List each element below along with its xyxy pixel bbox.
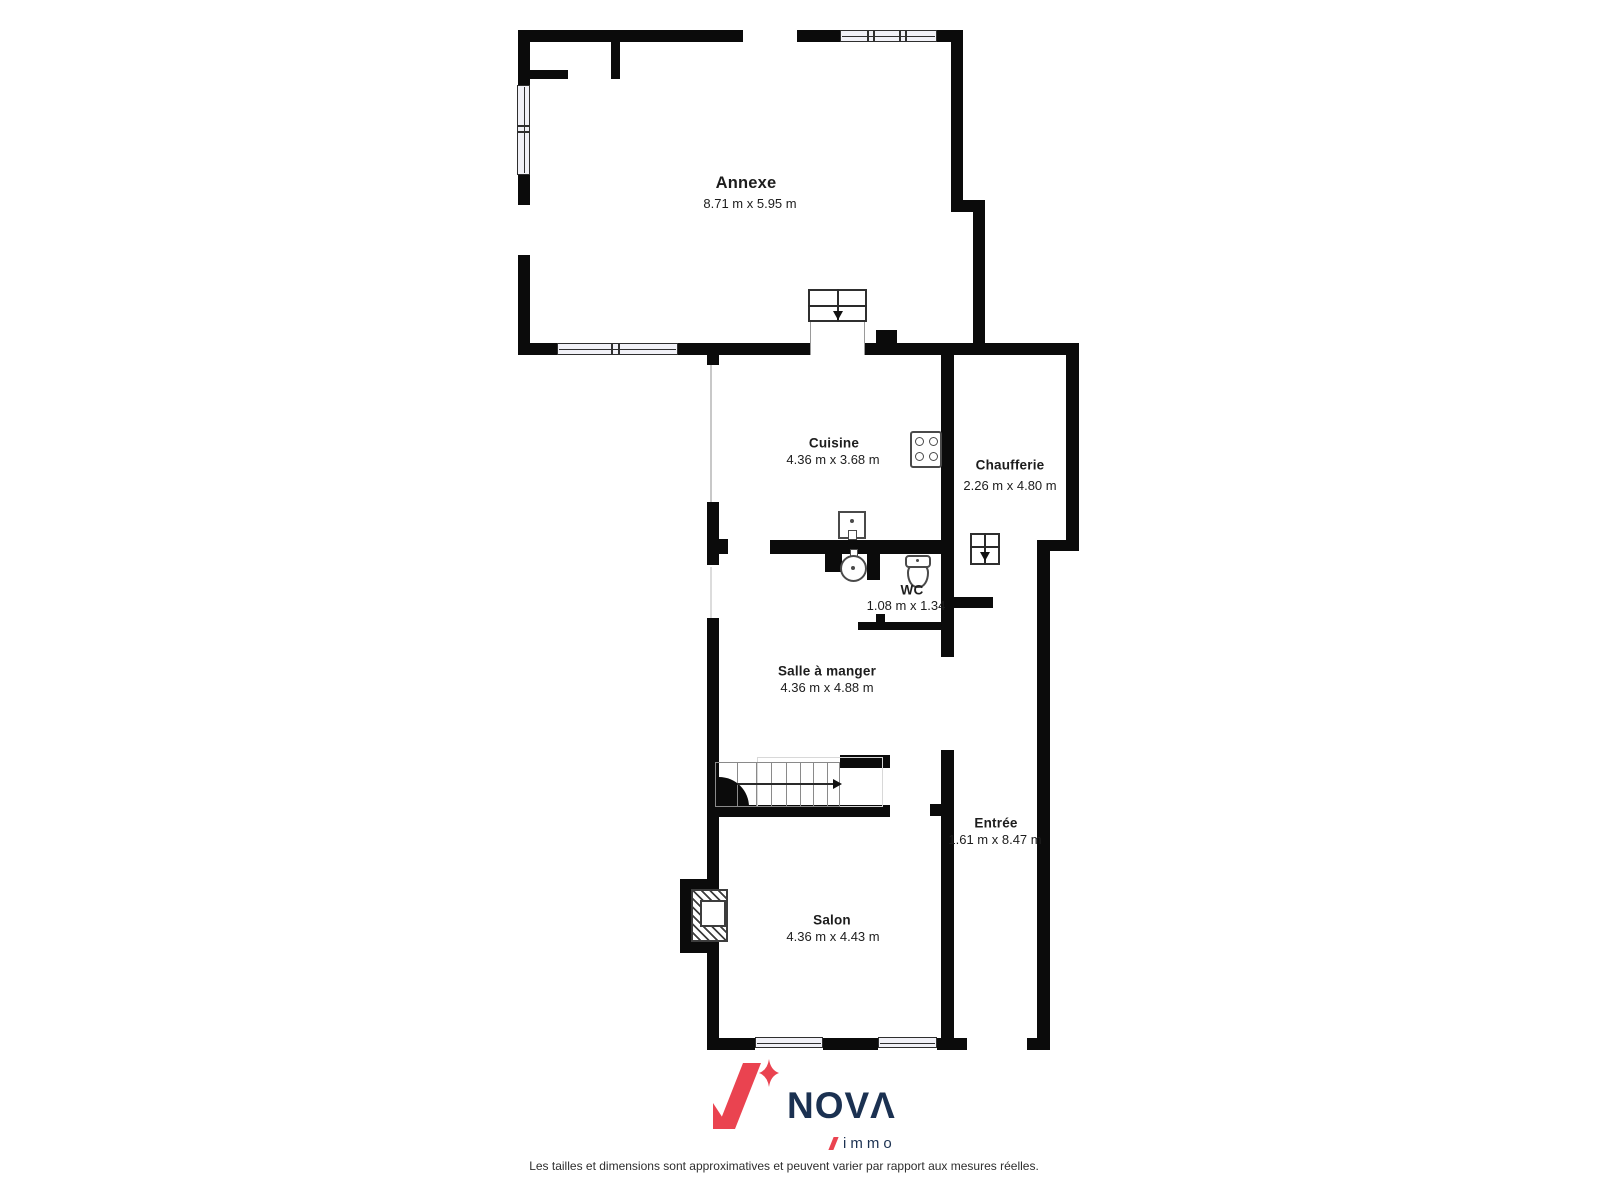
down-arrow-icon — [980, 552, 990, 561]
window-divider — [518, 125, 529, 127]
wall-segment — [518, 175, 530, 205]
room-label-salle-a-manger: Salle à manger — [778, 665, 876, 680]
washbasin-drain — [851, 566, 855, 570]
chimney-stub — [876, 330, 897, 344]
window-icon — [755, 1037, 823, 1048]
room-label-entree: Entrée — [974, 817, 1017, 832]
wall-segment — [863, 343, 1079, 355]
wall-segment — [867, 554, 880, 580]
toilet-button — [916, 559, 919, 562]
logo-subtitle: immo — [831, 1135, 896, 1152]
window-icon — [878, 1037, 937, 1048]
wall-segment — [707, 618, 719, 764]
window-icon — [517, 85, 530, 175]
wall-segment — [1027, 1038, 1049, 1050]
stove-icon — [910, 431, 942, 468]
stove-burner — [929, 437, 938, 446]
window-icon — [840, 30, 937, 42]
wall-segment — [707, 1038, 755, 1050]
stair-arrow-icon — [833, 779, 842, 789]
wall-segment — [518, 343, 557, 355]
room-label-wc: WC — [901, 584, 924, 599]
nova-logo-icon — [713, 1055, 781, 1135]
stair-direction-line — [737, 783, 833, 785]
window-divider — [873, 31, 875, 41]
wall-segment — [680, 942, 719, 953]
wall-segment — [973, 200, 985, 355]
stairwell-passage — [810, 322, 865, 355]
wall-segment — [678, 343, 810, 355]
window-divider — [905, 31, 907, 41]
wall-segment — [951, 30, 963, 212]
sink-drain — [850, 519, 854, 523]
sink-faucet — [848, 530, 857, 540]
stove-burner — [929, 452, 938, 461]
floor-plan: Annexe 8.71 m x 5.95 m Cuisine 4.36 m x … — [0, 0, 1600, 1200]
wall-segment — [611, 30, 620, 79]
wall-segment — [707, 539, 728, 554]
window-divider — [618, 344, 620, 354]
wall-segment — [770, 540, 954, 554]
logo-subtitle-text: immo — [843, 1135, 896, 1152]
wall-segment — [797, 30, 840, 42]
wall-segment — [876, 614, 885, 623]
window-divider — [611, 344, 613, 354]
wall-segment — [937, 1038, 967, 1050]
wall-segment — [823, 1038, 878, 1050]
fireplace-hearth — [700, 900, 726, 927]
room-dims-cuisine: 4.36 m x 3.68 m — [786, 453, 879, 467]
wall-segment — [707, 355, 719, 365]
room-label-annexe: Annexe — [716, 174, 777, 192]
logo-wordmark: NOVΛ — [787, 1085, 896, 1127]
room-dims-wc: 1.08 m x 1.34 — [867, 599, 946, 613]
opening-line — [710, 567, 712, 618]
wall-segment — [954, 597, 993, 608]
wall-segment — [858, 622, 941, 630]
room-dims-salon: 4.36 m x 4.43 m — [786, 930, 879, 944]
room-label-cuisine: Cuisine — [809, 437, 859, 452]
wall-segment — [707, 502, 719, 565]
wall-segment — [1066, 343, 1079, 551]
disclaimer-text: Les tailles et dimensions sont approxima… — [0, 1159, 1568, 1173]
stove-burner — [915, 452, 924, 461]
room-label-salon: Salon — [813, 914, 851, 929]
wall-segment — [518, 30, 743, 42]
wall-segment — [707, 953, 719, 1050]
logo-slash-icon — [828, 1137, 838, 1150]
wall-segment — [1037, 540, 1079, 551]
room-label-chaufferie: Chaufferie — [976, 459, 1045, 474]
window-divider — [899, 31, 901, 41]
wall-segment — [930, 804, 941, 816]
room-dims-chaufferie: 2.26 m x 4.80 m — [963, 479, 1056, 493]
down-arrow-icon — [833, 311, 843, 320]
window-divider — [518, 131, 529, 133]
wall-segment — [518, 70, 568, 79]
nova-immo-logo: NOVΛ immo — [713, 1053, 913, 1153]
room-dims-salle-a-manger: 4.36 m x 4.88 m — [780, 681, 873, 695]
room-divider-line — [710, 365, 712, 502]
wall-segment — [518, 255, 530, 355]
stove-burner — [915, 437, 924, 446]
window-divider — [867, 31, 869, 41]
wall-segment — [707, 817, 719, 881]
room-dims-annexe: 8.71 m x 5.95 m — [703, 197, 796, 211]
room-dims-entree: 1.61 m x 8.47 m — [948, 833, 1041, 847]
wall-segment — [941, 750, 954, 1050]
wall-segment — [1037, 551, 1050, 1050]
